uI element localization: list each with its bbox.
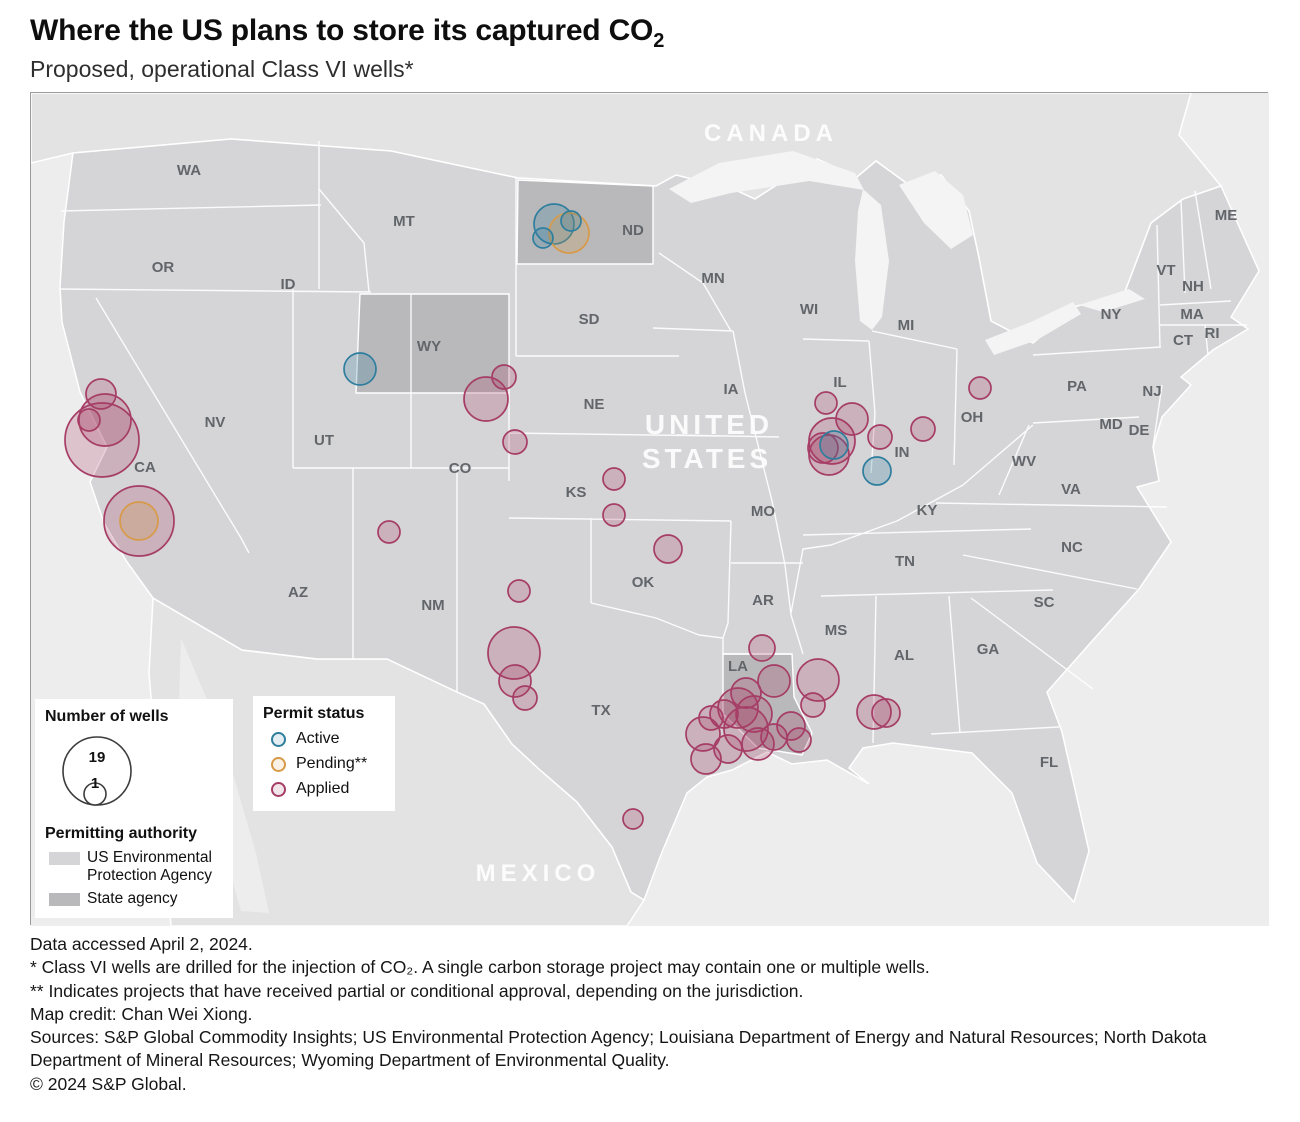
well-bubble-active <box>561 211 581 231</box>
state-label-ut: UT <box>314 432 334 449</box>
state-label-wy: WY <box>417 338 441 355</box>
well-bubble-applied <box>758 665 790 697</box>
state-label-id: ID <box>281 276 296 293</box>
state-label-sc: SC <box>1034 594 1055 611</box>
map-panel: CANADAUNITEDSTATESMEXICO WAORCANVIDMTWYU… <box>30 92 1268 925</box>
state-label-nv: NV <box>205 414 226 431</box>
page: Where the US plans to store its captured… <box>0 0 1300 1096</box>
state-label-ia: IA <box>724 381 739 398</box>
authority-item-label: State agency <box>87 890 223 908</box>
status-item-pending: Pending** <box>271 755 385 773</box>
state-label-va: VA <box>1061 481 1081 498</box>
state-label-nc: NC <box>1061 539 1083 556</box>
footnote-sources: Sources: S&P Global Commodity Insights; … <box>30 1026 1270 1073</box>
well-bubble-applied <box>911 417 935 441</box>
state-label-ga: GA <box>977 641 1000 658</box>
state-label-ny: NY <box>1101 306 1122 323</box>
epa-swatch <box>49 852 80 865</box>
state-label-nj: NJ <box>1142 383 1161 400</box>
state-label-wa: WA <box>177 162 201 179</box>
well-bubble-applied <box>503 430 527 454</box>
footnote: * Class VI wells are drilled for the inj… <box>30 956 1270 979</box>
authority-legend-title: Permitting authority <box>45 825 223 843</box>
region-label-united: UNITED <box>645 409 773 440</box>
pending-status-icon <box>271 757 286 772</box>
region-label-mexico: MEXICO <box>476 860 601 887</box>
active-status-icon <box>271 732 286 747</box>
state-label-tn: TN <box>895 553 915 570</box>
authority-item-state: State agency <box>49 890 223 908</box>
state-label-nh: NH <box>1182 278 1204 295</box>
state-label-wv: WV <box>1012 453 1036 470</box>
state-label-wi: WI <box>800 301 818 318</box>
well-bubble-applied <box>714 735 742 763</box>
well-bubble-applied <box>654 535 682 563</box>
status-legend-title: Permit status <box>263 705 385 723</box>
well-bubble-active <box>344 353 376 385</box>
state-label-il: IL <box>833 374 846 391</box>
state-label-ct: CT <box>1173 332 1193 349</box>
state-label-ne: NE <box>584 396 605 413</box>
state-agency-swatch <box>49 893 80 906</box>
state-label-mt: MT <box>393 213 415 230</box>
state-label-in: IN <box>895 444 910 461</box>
title-subscript: 2 <box>653 30 664 52</box>
state-label-mi: MI <box>898 317 915 334</box>
min-wells-label: 1 <box>91 775 99 792</box>
well-bubble-applied <box>492 365 516 389</box>
well-bubble-applied <box>787 728 811 752</box>
page-subtitle: Proposed, operational Class VI wells* <box>30 56 1270 83</box>
state-label-mo: MO <box>751 503 775 520</box>
wells-legend: Number of wells 19 1 Permitting authorit… <box>35 699 233 918</box>
well-bubble-applied <box>378 521 400 543</box>
well-bubble-applied <box>603 504 625 526</box>
state-label-md: MD <box>1099 416 1122 433</box>
state-label-co: CO <box>449 460 472 477</box>
well-bubble-applied <box>872 699 900 727</box>
state-label-al: AL <box>894 647 914 664</box>
well-bubble-active <box>863 457 891 485</box>
well-bubble-active <box>820 431 848 459</box>
applied-status-icon <box>271 782 286 797</box>
status-item-label: Applied <box>296 780 349 798</box>
authority-item-label: US Environmental Protection Agency <box>87 849 223 884</box>
status-item-active: Active <box>271 730 385 748</box>
well-bubble-applied <box>815 392 837 414</box>
footnote: Map credit: Chan Wei Xiong. <box>30 1003 1270 1026</box>
footnote: ** Indicates projects that have received… <box>30 980 1270 1003</box>
page-title: Where the US plans to store its captured… <box>30 14 1270 53</box>
max-wells-label: 19 <box>89 749 106 766</box>
wells-size-diagram: 19 1 <box>45 730 155 810</box>
state-label-fl: FL <box>1040 754 1058 771</box>
state-label-ks: KS <box>566 484 587 501</box>
region-label-states: STATES <box>642 443 772 474</box>
state-label-pa: PA <box>1067 378 1087 395</box>
state-label-ar: AR <box>752 592 774 609</box>
well-bubble-applied <box>508 580 530 602</box>
status-item-label: Active <box>296 730 340 748</box>
well-bubble-applied <box>801 693 825 717</box>
state-label-sd: SD <box>579 311 600 328</box>
permit-status-legend: Permit status Active Pending** Applied <box>253 696 395 811</box>
state-label-ok: OK <box>632 574 655 591</box>
state-label-me: ME <box>1215 207 1238 224</box>
state-label-nd: ND <box>622 222 644 239</box>
state-label-la: LA <box>728 658 748 675</box>
state-label-de: DE <box>1129 422 1150 439</box>
state-label-or: OR <box>152 259 175 276</box>
footer-notes: Data accessed April 2, 2024. * Class VI … <box>30 933 1270 1096</box>
well-bubble-applied <box>513 686 537 710</box>
state-label-vt: VT <box>1156 262 1175 279</box>
region-label-canada: CANADA <box>704 120 838 147</box>
state-label-ms: MS <box>825 622 848 639</box>
state-label-oh: OH <box>961 409 984 426</box>
footnote: Data accessed April 2, 2024. <box>30 933 1270 956</box>
well-bubble-applied <box>603 468 625 490</box>
state-label-ky: KY <box>917 502 938 519</box>
state-label-ca: CA <box>134 459 156 476</box>
well-bubble-pending <box>120 502 158 540</box>
state-label-mn: MN <box>701 270 724 287</box>
well-bubble-applied <box>749 635 775 661</box>
well-bubble-applied <box>969 377 991 399</box>
state-label-nm: NM <box>421 597 444 614</box>
state-label-tx: TX <box>591 702 610 719</box>
wells-legend-title: Number of wells <box>45 708 223 726</box>
state-label-ri: RI <box>1205 325 1220 342</box>
status-item-label: Pending** <box>296 755 367 773</box>
well-bubble-applied <box>65 403 139 477</box>
well-bubble-active <box>533 228 553 248</box>
authority-item-epa: US Environmental Protection Agency <box>49 849 223 884</box>
status-item-applied: Applied <box>271 780 385 798</box>
state-label-ma: MA <box>1180 306 1203 323</box>
footnote-copyright: © 2024 S&P Global. <box>30 1073 1270 1096</box>
well-bubble-applied <box>868 425 892 449</box>
state-label-az: AZ <box>288 584 308 601</box>
well-bubble-applied <box>623 809 643 829</box>
